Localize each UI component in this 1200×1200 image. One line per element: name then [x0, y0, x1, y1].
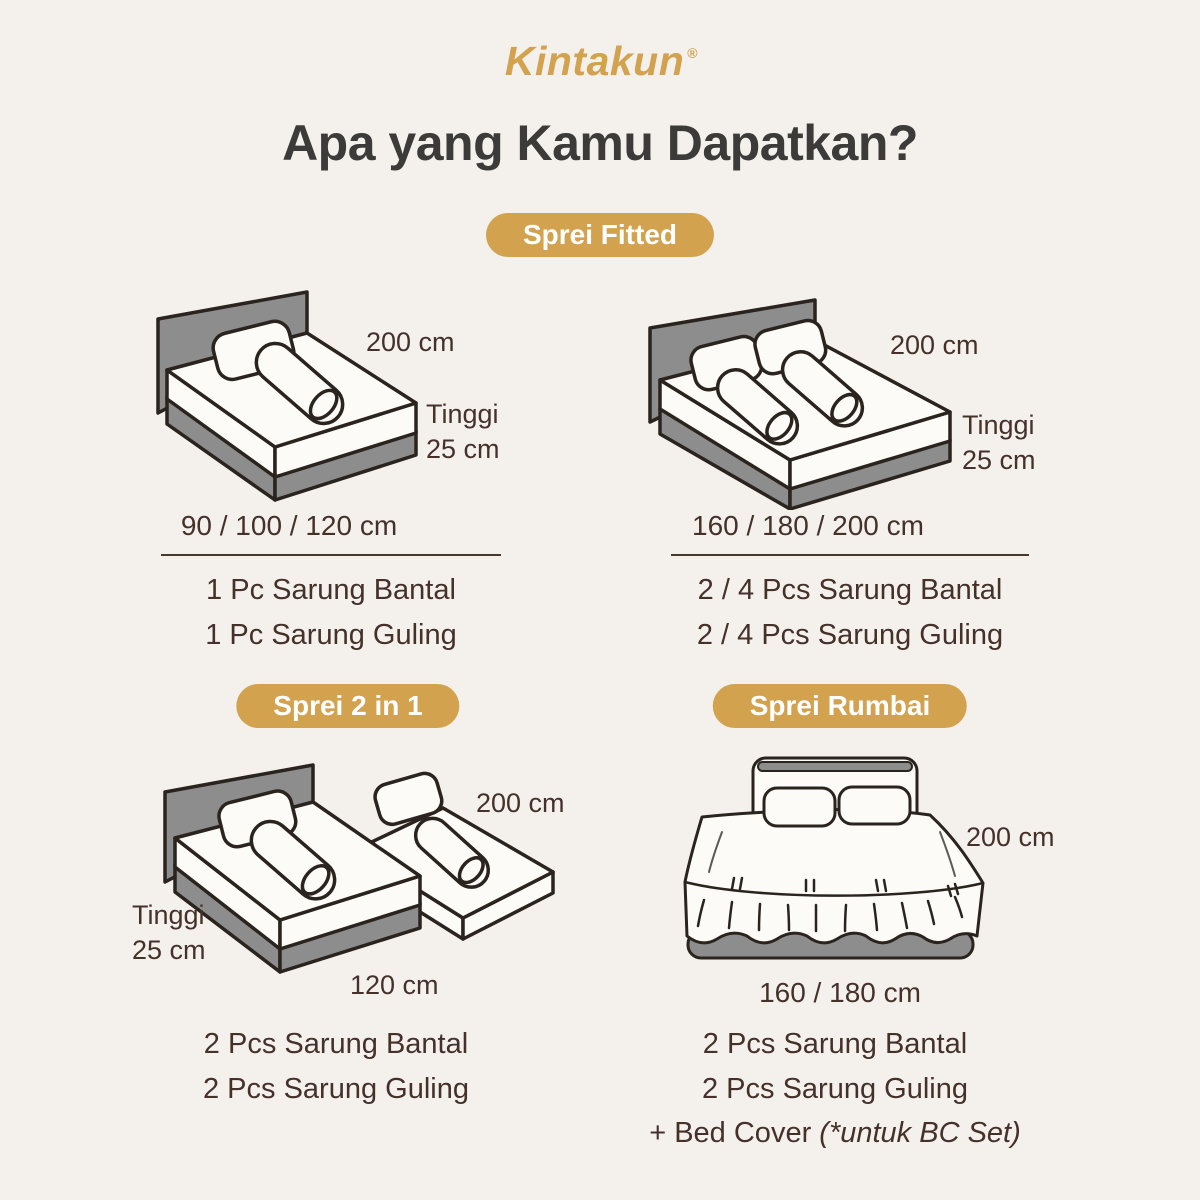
rumbai-bed-svg: [660, 750, 1080, 975]
included-item: 2 Pcs Sarung Bantal: [116, 1022, 556, 1067]
included-item: 2 / 4 Pcs Sarung Guling: [634, 613, 1066, 658]
dim-width-label: 200 cm: [890, 328, 979, 363]
dim-bottom-label: 120 cm: [350, 968, 439, 1003]
infographic-canvas: Kintakun® Apa yang Kamu Dapatkan? Sprei …: [0, 0, 1200, 1200]
badge-sprei-2-in-1: Sprei 2 in 1: [236, 684, 459, 728]
dim-width-label: 200 cm: [366, 325, 455, 360]
size-options: 160 / 180 cm: [640, 976, 1040, 1010]
fitted-left-details: 90 / 100 / 120 cm 1 Pc Sarung Bantal 1 P…: [115, 509, 547, 657]
dim-height-line2: 25 cm: [426, 432, 500, 467]
registered-mark: ®: [687, 45, 698, 61]
size-options: 160 / 180 / 200 cm: [592, 509, 1024, 543]
dim-height-line1: Tinggi: [132, 898, 206, 933]
included-item: 2 Pcs Sarung Bantal: [615, 1022, 1055, 1067]
single-bed-svg: [110, 285, 540, 505]
included-item: 2 / 4 Pcs Sarung Bantal: [634, 568, 1066, 613]
bed-cover-note: (*untuk BC Set): [819, 1117, 1020, 1149]
included-item: 2 Pcs Sarung Guling: [615, 1067, 1055, 1112]
badge-sprei-rumbai: Sprei Rumbai: [713, 684, 967, 728]
included-item: 2 Pcs Sarung Guling: [116, 1067, 556, 1112]
bed-cover-prefix: + Bed Cover: [649, 1117, 819, 1149]
dim-height-label: Tinggi 25 cm: [962, 408, 1036, 478]
rumbai-details: 2 Pcs Sarung Bantal 2 Pcs Sarung Guling …: [615, 1022, 1055, 1156]
dim-width-label: 200 cm: [966, 820, 1055, 855]
dim-height-label: Tinggi 25 cm: [426, 397, 500, 467]
pillow-right: [839, 787, 910, 824]
pillow-left: [764, 788, 835, 826]
dim-height-line1: Tinggi: [426, 397, 500, 432]
included-item-bed-cover: + Bed Cover (*untuk BC Set): [615, 1111, 1055, 1156]
included-item: 1 Pc Sarung Guling: [115, 613, 547, 658]
brand-logo: Kintakun®: [0, 38, 1200, 85]
divider-line: [161, 554, 501, 556]
dim-height-line2: 25 cm: [132, 933, 206, 968]
headboard-rim: [758, 762, 912, 771]
fitted-double-bed-illustration: 200 cm Tinggi 25 cm: [630, 290, 1060, 510]
page-title: Apa yang Kamu Dapatkan?: [0, 114, 1200, 172]
included-item: 1 Pc Sarung Bantal: [115, 568, 547, 613]
dim-width-label: 200 cm: [476, 786, 565, 821]
two-in-one-bed-illustration: 200 cm Tinggi 25 cm 120 cm: [110, 750, 600, 1000]
badge-sprei-fitted: Sprei Fitted: [486, 213, 714, 257]
rumbai-bed-illustration: 200 cm: [660, 750, 1080, 975]
dim-height-label: Tinggi 25 cm: [132, 898, 206, 968]
dim-height-line1: Tinggi: [962, 408, 1036, 443]
rumbai-size: 160 / 180 cm: [640, 976, 1040, 1010]
brand-logo-text: Kintakun: [505, 38, 684, 84]
divider-line: [671, 554, 1029, 556]
size-options: 90 / 100 / 120 cm: [73, 509, 505, 543]
two-in-one-details: 2 Pcs Sarung Bantal 2 Pcs Sarung Guling: [116, 1022, 556, 1111]
dim-height-line2: 25 cm: [962, 443, 1036, 478]
fitted-single-bed-illustration: 200 cm Tinggi 25 cm: [110, 285, 540, 505]
fitted-right-details: 160 / 180 / 200 cm 2 / 4 Pcs Sarung Bant…: [634, 509, 1066, 657]
